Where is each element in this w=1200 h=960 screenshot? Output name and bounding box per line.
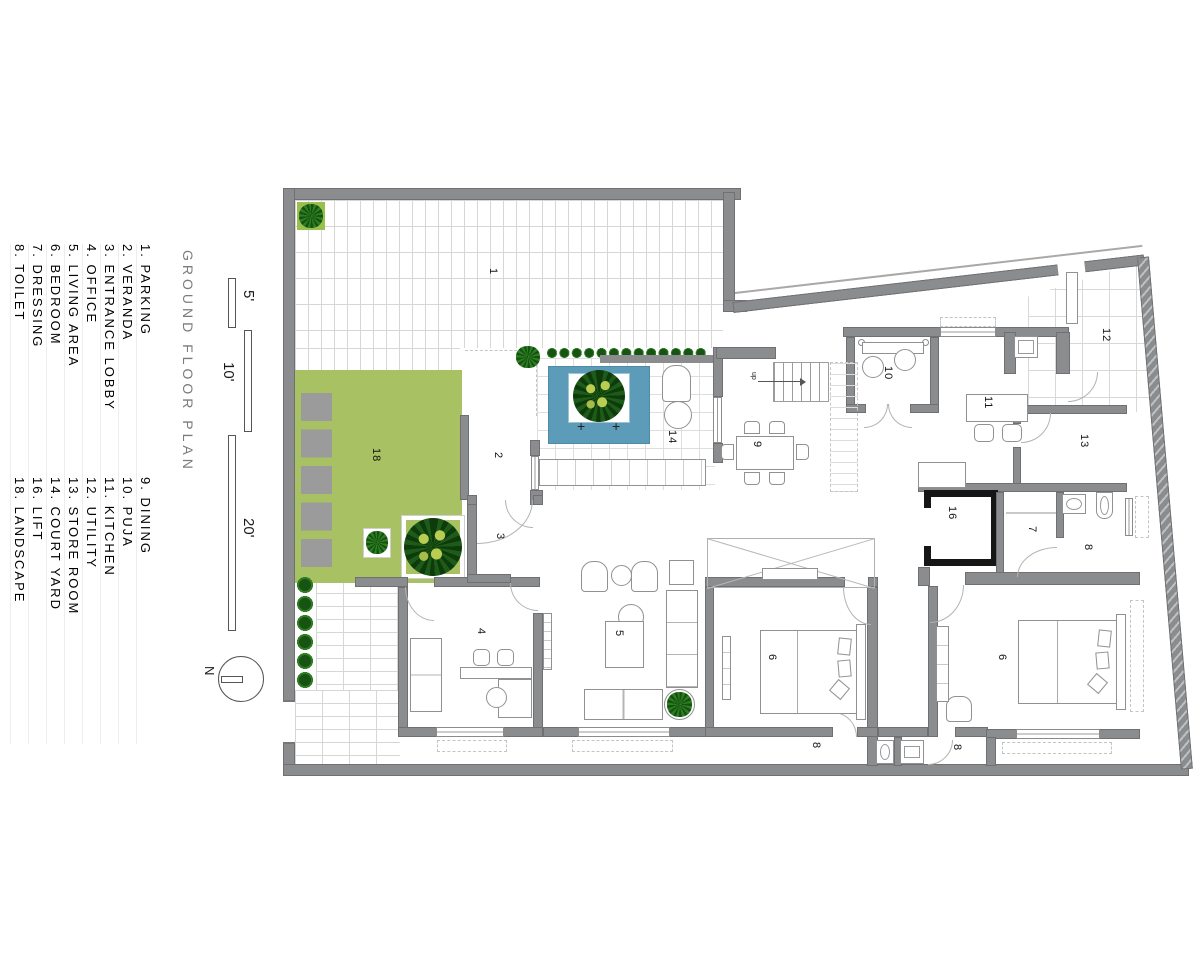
room-label-parking: 1 <box>487 268 498 275</box>
legend-item: 2. VERANDA <box>120 244 135 341</box>
wall-top <box>283 188 741 200</box>
legend-column: 6. BEDROOM 14. COURT YARD <box>46 244 64 744</box>
toilet-upper-basin <box>1062 494 1086 514</box>
wall-toilet-br-top-b <box>955 727 988 737</box>
office-window <box>436 727 504 737</box>
veranda-window <box>531 456 539 490</box>
toilet-upper-window <box>1125 498 1133 536</box>
room-label-office: 4 <box>475 628 486 635</box>
puja-bell <box>862 356 884 378</box>
courtyard-table <box>664 401 692 429</box>
bedr-wardrobe <box>936 626 949 702</box>
wall-veranda-right-a <box>530 440 540 456</box>
lobby-south-door-arc <box>510 583 538 611</box>
office-door-arc <box>405 587 434 621</box>
room-label-dressing: 7 <box>1026 526 1037 533</box>
wall-puja-right <box>930 337 939 413</box>
room-label-dining: 9 <box>751 441 762 448</box>
room-label-kitchen: 11 <box>982 396 993 409</box>
stair-up-label: up <box>750 372 757 380</box>
legend-column: 2. VERANDA 10. PUJA <box>118 244 136 744</box>
north-needle <box>221 676 243 683</box>
legend-column: 4. OFFICE 12. UTILITY <box>82 244 100 744</box>
basin-bowl <box>1066 498 1082 510</box>
wc-bowl <box>1100 496 1109 515</box>
living-side-table <box>611 565 632 586</box>
stair-arrow-line <box>758 381 800 382</box>
gate-door-leaf <box>1066 272 1078 324</box>
side-path-paving-lower <box>295 690 400 766</box>
legend: 8. TOILET 18. LANDSCAPE 7. DRESSING 16. … <box>10 244 154 744</box>
bedl-pillow <box>837 637 852 655</box>
living-armchair <box>631 561 658 592</box>
dining-table <box>736 436 794 470</box>
room-label-toilet-upper: 8 <box>1082 544 1093 551</box>
legend-item: 10. PUJA <box>120 477 135 548</box>
wall-kitchen-stub-r <box>1056 332 1070 374</box>
legend-column: 1. PARKING 9. DINING <box>136 244 154 744</box>
scale-bar-10ft <box>244 330 252 432</box>
dining-chair <box>744 472 760 485</box>
room-label-utility: 12 <box>1100 328 1111 342</box>
legend-item: 7. DRESSING <box>30 244 45 348</box>
bedl-headboard <box>856 624 866 720</box>
wall-parking-right <box>723 192 735 308</box>
legend-item: 9. DINING <box>138 477 153 555</box>
courtyard-armchair <box>662 365 691 402</box>
wall-lift-dressing <box>996 492 1004 574</box>
room-label-bedroom-right: 6 <box>996 654 1007 661</box>
kitchen-stool <box>1002 424 1022 442</box>
office-guest-chair <box>497 649 514 666</box>
wall-bottom <box>283 764 1189 776</box>
dressing-shelf-line <box>1006 512 1056 514</box>
wall-office-right <box>533 613 543 737</box>
cutout-beam <box>762 568 818 580</box>
toiletbr-door-arc <box>928 740 953 765</box>
office-ext-dash <box>437 740 507 752</box>
wall-lobby-bottom <box>467 574 511 583</box>
legend-item: 12. UTILITY <box>84 477 99 569</box>
legend-item: 14. COURT YARD <box>48 477 63 611</box>
pool-marker: + <box>577 419 585 433</box>
toiletbr-duct <box>900 740 924 764</box>
room-label-landscape: 18 <box>370 448 381 462</box>
bedl-wardrobe <box>722 636 731 700</box>
large-tree <box>404 518 462 576</box>
living-sofa-long <box>666 590 698 688</box>
stair-arrow-head <box>800 378 806 386</box>
living-tv-unit <box>669 560 694 585</box>
kitchen-island <box>966 394 1028 422</box>
dressing-door-arc <box>1017 547 1057 577</box>
wall-left <box>283 188 295 776</box>
wall-veranda-left <box>460 415 469 500</box>
pool-marker: + <box>612 419 620 433</box>
legend-item: 6. BEDROOM <box>48 244 63 346</box>
wall-store-left-b <box>1013 447 1021 487</box>
scale-bar-5ft <box>228 278 236 328</box>
office-sofa <box>410 638 442 712</box>
lift-shaft <box>924 490 998 566</box>
legend-column: 3. ENTRANCE LOBBY 11. KITCHEN <box>100 244 118 744</box>
wall-dining-top <box>716 347 776 359</box>
legend-item: 13. STORE ROOM <box>66 477 81 615</box>
small-plant <box>366 531 388 554</box>
toilet-upper-wc <box>1096 492 1113 519</box>
legend-item: 8. TOILET <box>12 244 27 322</box>
duct-inner <box>904 746 920 758</box>
legend-item: 4. OFFICE <box>84 244 99 324</box>
kitchen-sink <box>1014 336 1038 358</box>
bedl-door-arc <box>843 587 871 625</box>
courtyard-right-window <box>713 397 722 443</box>
living-plant <box>667 692 692 717</box>
living-sofa-two-seat <box>584 689 663 720</box>
legend-column: 5. LIVING AREA 13. STORE ROOM <box>64 244 82 744</box>
wall-hedge <box>600 355 713 363</box>
wall-bedl-left <box>705 587 714 737</box>
toilet-upper-dash <box>1135 496 1149 538</box>
scale-label-5ft: 5' <box>240 290 257 301</box>
bedl-pillow <box>837 659 851 677</box>
bedr-window <box>1016 729 1100 739</box>
wall-corridor-stub <box>918 567 930 586</box>
wall-bedl-bottom-a <box>705 727 833 737</box>
hedge-left <box>294 576 316 690</box>
kitchen-counter <box>918 462 966 488</box>
sink-basin <box>1018 340 1034 354</box>
room-label-puja: 10 <box>882 366 893 380</box>
stair-dashed-flight <box>830 362 858 492</box>
legend-item: 16. LIFT <box>30 477 45 541</box>
wall-lobby-top-stub-l <box>467 495 477 505</box>
puja-door-arc-r <box>888 404 912 428</box>
bedr-door-arc <box>930 585 964 623</box>
wall-lobby-top-stub-r <box>533 495 543 505</box>
basin-bowl <box>880 744 890 760</box>
kitchen-stool <box>974 424 994 442</box>
room-label-living: 5 <box>613 630 624 637</box>
gate-left <box>283 700 295 744</box>
page-title: GROUND FLOOR PLAN <box>180 250 196 473</box>
legend-item: 5. LIVING AREA <box>66 244 81 367</box>
living-window <box>578 727 670 737</box>
legend-column: 7. DRESSING 16. LIFT <box>28 244 46 744</box>
kitchen-window-planter <box>940 317 996 327</box>
legend-item: 11. KITCHEN <box>102 477 117 577</box>
bedr-side-dash <box>1130 600 1144 712</box>
room-label-toilet-bl: 8 <box>810 742 821 749</box>
north-label: N <box>202 666 217 675</box>
puja-altar <box>862 342 924 354</box>
wall-bedl-bottom-b <box>857 727 878 737</box>
room-label-bedroom-left: 6 <box>766 654 777 661</box>
legend-item: 3. ENTRANCE LOBBY <box>102 244 117 411</box>
dining-chair <box>721 444 734 460</box>
dining-chair <box>769 472 785 485</box>
parking-paving <box>295 200 723 348</box>
living-coffee-table <box>605 621 644 668</box>
legend-item: 18. LANDSCAPE <box>12 477 27 603</box>
veranda-plant <box>516 346 540 368</box>
office-guest-chair <box>473 649 490 666</box>
wall-office-left <box>398 587 408 737</box>
corner-plant <box>299 204 323 228</box>
office-desk <box>460 667 532 679</box>
toiletbl-door-arc <box>833 712 857 737</box>
bedr-pillow <box>1095 651 1109 669</box>
office-cabinet <box>543 613 552 670</box>
scale-label-10ft: 10' <box>220 362 237 382</box>
wall-puja-bottom-r <box>910 404 939 413</box>
wall-lobby-left <box>467 497 477 583</box>
puja-bell <box>894 349 916 371</box>
legend-column: 8. TOILET 18. LANDSCAPE <box>10 244 28 744</box>
dining-chair <box>796 444 809 460</box>
room-label-lobby: 3 <box>494 533 505 540</box>
wall-toilet-br-top-a <box>878 727 928 737</box>
dining-chair <box>744 421 760 434</box>
bedr-headboard <box>1116 614 1126 710</box>
dining-chair <box>769 421 785 434</box>
living-ext-dash <box>572 740 673 752</box>
legend-item: 1. PARKING <box>138 244 153 336</box>
wall-toiletbr-right <box>986 737 996 766</box>
bedr-ext-dash <box>1002 742 1112 754</box>
lift-door-opening <box>924 508 931 546</box>
wall-office-top-a <box>355 577 408 587</box>
kitchen-window <box>940 327 996 337</box>
room-label-courtyard: 14 <box>666 430 677 444</box>
living-armchair <box>581 561 608 592</box>
stepping-stones <box>301 393 332 575</box>
puja-door-arc-l <box>864 404 888 428</box>
pool-tree <box>573 370 625 422</box>
office-chair <box>486 687 507 708</box>
bedr-pillow <box>1097 629 1112 647</box>
room-label-store: 13 <box>1078 434 1089 448</box>
toiletbl-basin <box>876 740 894 764</box>
room-label-veranda: 2 <box>492 452 503 459</box>
courtyard-bench <box>539 459 706 486</box>
bedr-armchair <box>946 696 972 722</box>
room-label-lift: 16 <box>946 506 957 520</box>
room-label-toilet-br: 8 <box>951 744 962 751</box>
scale-bar-20ft <box>228 435 236 631</box>
scale-label-20ft: 20' <box>240 518 257 538</box>
